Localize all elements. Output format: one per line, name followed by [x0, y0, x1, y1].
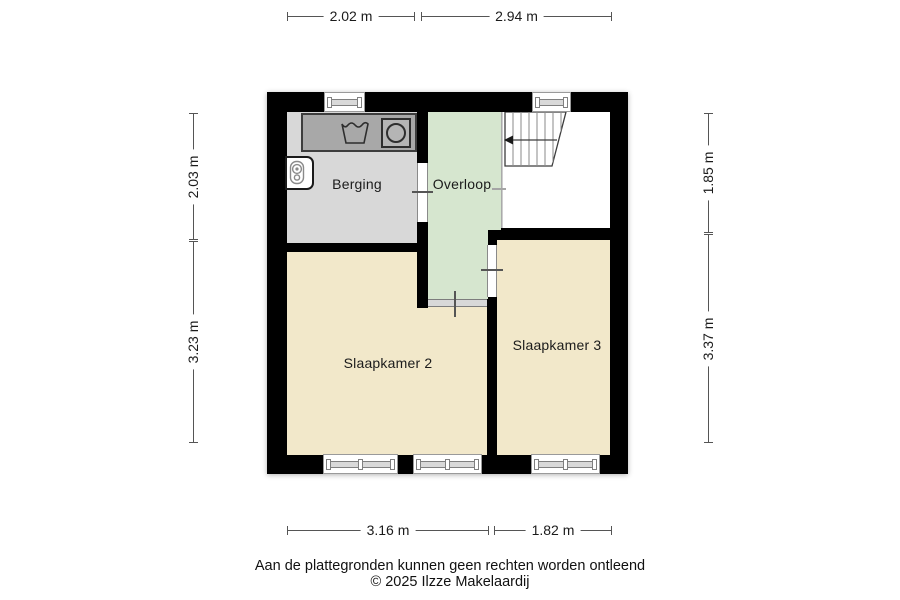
door-slaapkamer-3-leaf	[481, 269, 503, 271]
dimension-label: 2.03 m	[185, 149, 201, 204]
dimension-top-left: 2.02 m	[287, 16, 415, 17]
wall-overloop-slaapkamer2	[417, 252, 428, 308]
label-berging: Berging	[332, 176, 382, 192]
boiler-symbol	[289, 160, 307, 186]
floorplan: Berging Overloop Slaapkamer 2 Slaapkamer…	[267, 92, 628, 474]
dimension-label: 3.16 m	[361, 522, 416, 538]
dimension-top-right: 2.94 m	[421, 16, 612, 17]
floorplan-canvas: 2.02 m 2.94 m 3.16 m 1.82 m 2.03 m 3.23 …	[0, 0, 900, 600]
dimension-label: 3.37 m	[700, 311, 716, 366]
dimension-bottom-right: 1.82 m	[494, 530, 612, 531]
stairs-icon	[501, 112, 610, 228]
dimension-label: 2.94 m	[489, 8, 544, 24]
stairwell-opening-mark	[492, 188, 506, 190]
washing-machine-drum	[386, 123, 406, 143]
room-overloop	[428, 112, 501, 230]
label-slaapkamer-2: Slaapkamer 2	[344, 355, 433, 371]
window-slaapkamer-2-b	[413, 454, 482, 474]
door-slaapkamer-2-leaf	[454, 291, 456, 317]
boiler-icon	[285, 156, 314, 190]
dimension-left-lower: 3.23 m	[193, 241, 194, 443]
window-berging	[324, 92, 365, 112]
dimension-bottom-left: 3.16 m	[287, 530, 489, 531]
footer-copyright: © 2025 Ilzze Makelaardij	[0, 574, 900, 590]
window-slaapkamer-2-a	[323, 454, 398, 474]
dimension-label: 3.23 m	[185, 315, 201, 370]
dimension-right-upper: 1.85 m	[708, 113, 709, 233]
door-slaapkamer-3	[487, 245, 497, 297]
dimension-label: 1.82 m	[526, 522, 581, 538]
dimension-label: 2.02 m	[324, 8, 379, 24]
footer-disclaimer: Aan de plattegronden kunnen geen rechten…	[0, 558, 900, 574]
dimension-label: 1.85 m	[700, 146, 716, 201]
door-slaapkamer-2	[428, 299, 487, 307]
dimension-left-upper: 2.03 m	[193, 113, 194, 240]
room-overloop-lower	[428, 228, 488, 299]
sink-icon	[341, 121, 369, 145]
washing-machine-icon	[381, 118, 411, 148]
door-berging-leaf	[412, 191, 433, 193]
window-stairwell	[532, 92, 571, 112]
label-overloop: Overloop	[433, 176, 491, 192]
label-slaapkamer-3: Slaapkamer 3	[513, 337, 602, 353]
dimension-right-lower: 3.37 m	[708, 234, 709, 443]
window-slaapkamer-3	[531, 454, 600, 474]
